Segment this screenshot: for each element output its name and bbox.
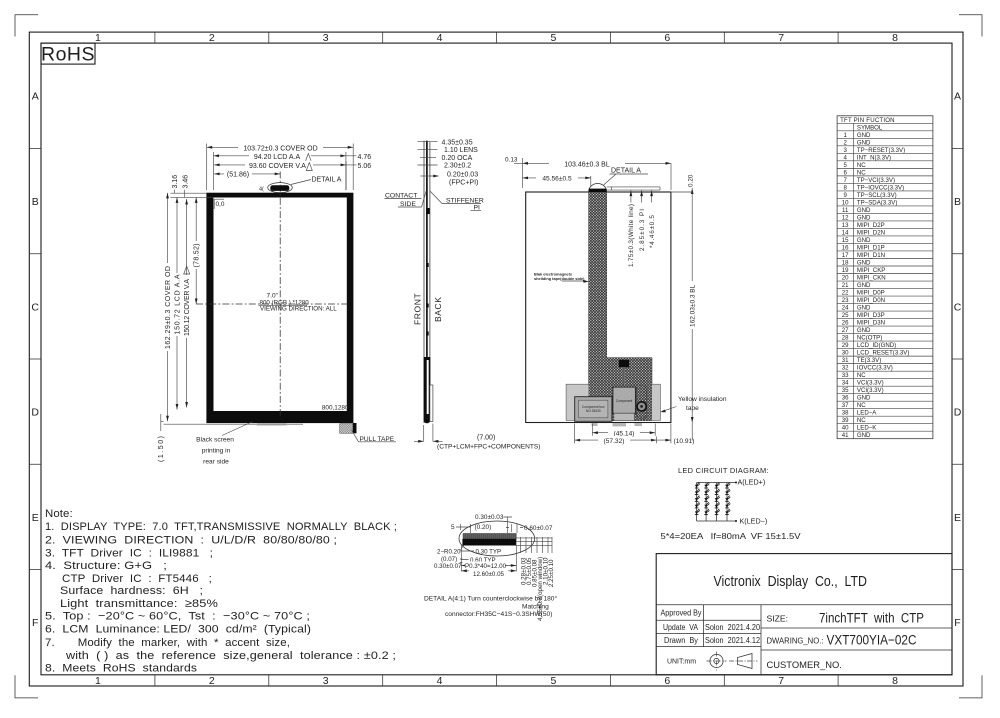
svg-text:Solon 2021.4.12: Solon 2021.4.12 xyxy=(705,636,760,645)
svg-text:B: B xyxy=(954,196,961,208)
svg-text:3: 3 xyxy=(323,32,329,44)
svg-text:6: 6 xyxy=(844,169,848,176)
svg-text:TP−SDA(3.3V): TP−SDA(3.3V) xyxy=(857,199,897,206)
svg-text:MIPI_D0P: MIPI_D0P xyxy=(857,290,885,297)
svg-text:Component: Component xyxy=(616,399,633,403)
svg-text:23: 23 xyxy=(842,297,849,304)
svg-text:3.46: 3.46 xyxy=(182,175,189,189)
svg-text:0,0: 0,0 xyxy=(216,201,225,208)
svg-text:NC(OTP): NC(OTP) xyxy=(857,335,882,342)
svg-text:13: 13 xyxy=(842,222,849,229)
svg-text:5: 5 xyxy=(550,675,556,687)
svg-text:P0.3*40=12.00: P0.3*40=12.00 xyxy=(465,563,507,570)
svg-text:D: D xyxy=(31,407,39,419)
svg-text:TP−IOVCC(3.3V): TP−IOVCC(3.3V) xyxy=(857,184,904,191)
svg-text:17: 17 xyxy=(842,252,849,259)
svg-text:DETAIL A(4:1) Turn countercloc: DETAIL A(4:1) Turn counterclockwise by 1… xyxy=(424,595,557,603)
svg-text:35: 35 xyxy=(842,387,849,394)
svg-text:5. Top : −20°C ~ 60°C, Tst: 5. Top : −20°C ~ 60°C, Tst : −30°C ~ 70°… xyxy=(45,611,310,623)
svg-text:GND: GND xyxy=(857,214,871,221)
svg-text:9: 9 xyxy=(844,192,848,199)
svg-text:K(LED−): K(LED−) xyxy=(740,517,768,526)
svg-text:E: E xyxy=(32,512,39,524)
svg-text:STIFFENER: STIFFENER xyxy=(446,197,484,204)
svg-text:16: 16 xyxy=(842,244,849,251)
svg-text:MIPI_D3P: MIPI_D3P xyxy=(857,312,885,319)
svg-text:32: 32 xyxy=(842,365,849,372)
svg-text:7. Modify the marker,: 7. Modify the marker, with * accent size… xyxy=(45,637,290,649)
svg-text:2. VIEWING DIRECTION : U/L: 2. VIEWING DIRECTION : U/L/D/R 80/80/80/… xyxy=(45,534,337,546)
svg-text:1.10 LENS: 1.10 LENS xyxy=(444,147,478,154)
svg-text:150.12 COVER V.A: 150.12 COVER V.A xyxy=(184,279,191,336)
svg-text:TP−RESET(3.3V): TP−RESET(3.3V) xyxy=(857,147,905,154)
svg-text:with ( ) as the reference: with ( ) as the reference size,general t… xyxy=(65,650,396,662)
svg-text:4: 4 xyxy=(844,154,848,161)
svg-text:10: 10 xyxy=(842,199,849,206)
svg-text:A: A xyxy=(954,91,961,103)
svg-text:0.20±0.03: 0.20±0.03 xyxy=(447,172,478,179)
svg-text:NO.25433: NO.25433 xyxy=(586,409,601,413)
svg-text:7: 7 xyxy=(778,675,784,687)
svg-text:0.13: 0.13 xyxy=(505,157,518,164)
svg-text:A(LED+): A(LED+) xyxy=(738,478,766,487)
svg-text:2.85±0.3 PI: 2.85±0.3 PI xyxy=(639,209,646,251)
svg-text:8: 8 xyxy=(844,184,848,191)
svg-text:NC: NC xyxy=(857,169,866,176)
svg-text:SIZE:: SIZE: xyxy=(767,614,789,624)
svg-text:1: 1 xyxy=(95,32,101,44)
svg-text:Note:: Note: xyxy=(45,508,73,520)
svg-text:GND: GND xyxy=(857,132,871,139)
svg-text:PULL TAPE: PULL TAPE xyxy=(360,436,395,443)
svg-text:VXT700YIA−02C: VXT700YIA−02C xyxy=(827,632,917,647)
svg-text:5.06: 5.06 xyxy=(358,163,372,170)
svg-text:40: 40 xyxy=(842,425,849,432)
svg-text:41: 41 xyxy=(842,432,849,439)
svg-text:TP−SCL(3.3V): TP−SCL(3.3V) xyxy=(857,192,897,199)
svg-text:1: 1 xyxy=(844,132,848,139)
svg-text:FRONT: FRONT xyxy=(413,293,423,325)
svg-text:Approved By: Approved By xyxy=(661,609,702,618)
svg-text:(CTP+LCM+FPC+COMPONENTS): (CTP+LCM+FPC+COMPONENTS) xyxy=(437,444,541,451)
svg-text:MIPI_CKN: MIPI_CKN xyxy=(857,275,886,282)
svg-text:103.46±0.3 BL: 103.46±0.3 BL xyxy=(564,161,610,168)
svg-text:Update VA: Update VA xyxy=(663,623,699,632)
svg-text:4: 4 xyxy=(437,675,443,687)
svg-text:5: 5 xyxy=(451,524,455,531)
svg-text:7: 7 xyxy=(844,177,848,184)
svg-text:22: 22 xyxy=(842,290,849,297)
svg-text:NC: NC xyxy=(857,402,866,409)
svg-text:NC: NC xyxy=(857,372,866,379)
svg-text:2: 2 xyxy=(209,32,215,44)
svg-text:*4.46±0.5: *4.46±0.5 xyxy=(649,215,656,248)
svg-text:21: 21 xyxy=(842,282,849,289)
svg-text:29: 29 xyxy=(842,342,849,349)
svg-text:39: 39 xyxy=(842,417,849,424)
svg-text:0.60±0.07: 0.60±0.07 xyxy=(524,525,553,532)
svg-text:F: F xyxy=(32,617,38,629)
svg-text:GND: GND xyxy=(857,305,871,312)
svg-text:38: 38 xyxy=(842,410,849,417)
svg-text:GND: GND xyxy=(857,207,871,214)
svg-text:tape: tape xyxy=(686,405,699,412)
svg-text:rear side: rear side xyxy=(203,459,229,466)
svg-text:GND: GND xyxy=(857,139,871,146)
svg-text:Yellow insulation: Yellow insulation xyxy=(678,396,727,403)
svg-text:20: 20 xyxy=(842,275,849,282)
svg-text:93.60 COVER V.A: 93.60 COVER V.A xyxy=(249,163,306,170)
svg-text:GND: GND xyxy=(857,432,871,439)
svg-text:printing in: printing in xyxy=(202,448,231,455)
svg-text:4. Structure: G+G ;: 4. Structure: G+G ; xyxy=(45,560,167,572)
svg-text:LED−A: LED−A xyxy=(857,410,877,417)
svg-text:6. LCM Luminance: LED/ 300: 6. LCM Luminance: LED/ 300 cd/m² (Typica… xyxy=(45,624,311,636)
svg-text:LCD_ID(GND): LCD_ID(GND) xyxy=(857,342,896,349)
svg-text:INT_N(3.3V): INT_N(3.3V) xyxy=(857,154,891,161)
svg-text:VIEWING DIRECTION: ALL: VIEWING DIRECTION: ALL xyxy=(260,306,337,313)
svg-text:36: 36 xyxy=(842,395,849,402)
svg-text:(FPC+PI): (FPC+PI) xyxy=(449,179,478,186)
svg-text:A: A xyxy=(32,91,39,103)
svg-text:7inchTFT with CTP: 7inchTFT with CTP xyxy=(819,610,924,625)
svg-text:Drawn By: Drawn By xyxy=(664,636,698,645)
svg-text:26: 26 xyxy=(842,320,849,327)
svg-text:11: 11 xyxy=(842,207,849,214)
svg-text:MIPI_D1N: MIPI_D1N xyxy=(857,252,885,259)
svg-text:RoHS: RoHS xyxy=(41,44,95,66)
svg-text:4.35±0.35: 4.35±0.35 xyxy=(442,139,473,146)
svg-text:800,1280: 800,1280 xyxy=(322,404,349,411)
svg-text:Light transmittance: ≥85%: Light transmittance: ≥85% xyxy=(60,598,218,610)
svg-text:NC: NC xyxy=(857,162,866,169)
svg-text:(0.07): (0.07) xyxy=(441,556,457,563)
svg-text:28: 28 xyxy=(842,335,849,342)
svg-text:(78.52): (78.52) xyxy=(194,244,201,268)
svg-text:4.76: 4.76 xyxy=(358,154,372,161)
svg-text:GND: GND xyxy=(857,237,871,244)
svg-text:(1.50): (1.50) xyxy=(158,436,165,462)
svg-text:0.20: 0.20 xyxy=(688,174,695,187)
svg-text:1.75±0.3(White line): 1.75±0.3(White line) xyxy=(628,204,635,267)
svg-text:MIPI_D0N: MIPI_D0N xyxy=(857,297,885,304)
svg-text:0.20 OCA: 0.20 OCA xyxy=(442,155,473,162)
svg-text:103.72±0.3 COVER OD: 103.72±0.3 COVER OD xyxy=(243,145,317,152)
svg-text:15: 15 xyxy=(842,237,849,244)
svg-text:30: 30 xyxy=(842,350,849,357)
svg-text:B: B xyxy=(32,196,39,208)
svg-text:C: C xyxy=(31,301,39,313)
svg-text:C: C xyxy=(954,301,962,313)
svg-text:(10.91): (10.91) xyxy=(674,438,695,445)
svg-text:94.20 LCD A.A: 94.20 LCD A.A xyxy=(254,154,301,161)
svg-text:MIPI_CKP: MIPI_CKP xyxy=(857,267,885,274)
svg-text:27: 27 xyxy=(842,327,849,334)
svg-text:7: 7 xyxy=(778,32,784,44)
svg-text:150.72 LCD A.A: 150.72 LCD A.A xyxy=(175,274,182,334)
svg-text:6: 6 xyxy=(664,32,670,44)
svg-text:45.56±0.5: 45.56±0.5 xyxy=(542,176,572,183)
svg-text:LED−K: LED−K xyxy=(857,425,876,432)
svg-text:2−R0.20: 2−R0.20 xyxy=(437,549,461,556)
svg-text:D: D xyxy=(954,407,962,419)
svg-text:2: 2 xyxy=(209,675,215,687)
svg-text:1: 1 xyxy=(95,675,101,687)
svg-text:Solon 2021.4.20: Solon 2021.4.20 xyxy=(705,623,760,632)
svg-text:DETAIL A: DETAIL A xyxy=(312,177,342,184)
svg-text:(7.00): (7.00) xyxy=(477,435,495,442)
svg-text:6: 6 xyxy=(664,675,670,687)
svg-text:MIPI_D2P: MIPI_D2P xyxy=(857,222,885,229)
svg-text:162.03±0.3 BL: 162.03±0.3 BL xyxy=(690,284,697,327)
svg-text:Black screen: Black screen xyxy=(196,437,234,444)
svg-text:Victronix Display Co., LTD: Victronix Display Co., LTD xyxy=(714,574,868,590)
svg-text:34: 34 xyxy=(842,380,849,387)
svg-text:8: 8 xyxy=(892,32,898,44)
svg-text:E: E xyxy=(954,512,961,524)
svg-text:NC: NC xyxy=(857,417,866,424)
svg-text:DETAIL A: DETAIL A xyxy=(611,168,641,175)
svg-text:MIPI_D3N: MIPI_D3N xyxy=(857,320,885,327)
svg-text:TP−VCI(3.3V): TP−VCI(3.3V) xyxy=(857,177,895,184)
svg-text:GND: GND xyxy=(857,282,871,289)
svg-text:2.30±0.2: 2.30±0.2 xyxy=(444,163,471,170)
svg-text:8: 8 xyxy=(892,675,898,687)
svg-text:Surface hardness: 6H ;: Surface hardness: 6H ; xyxy=(60,585,203,597)
svg-text:5: 5 xyxy=(844,162,848,169)
svg-text:TE(3.3V): TE(3.3V) xyxy=(857,357,881,364)
svg-text:SYMBOL: SYMBOL xyxy=(857,124,883,131)
svg-text:0.30±0.03: 0.30±0.03 xyxy=(475,514,504,521)
svg-text:sheilding tape(double side): sheilding tape(double side) xyxy=(534,276,585,281)
svg-text:(51.86): (51.86) xyxy=(227,172,249,179)
svg-text:VCI(3.3V): VCI(3.3V) xyxy=(857,380,884,387)
svg-text:18: 18 xyxy=(842,259,849,266)
svg-text:GND: GND xyxy=(857,259,871,266)
svg-text:162.29±0.3 COVER OD: 162.29±0.3 COVER OD xyxy=(165,266,172,349)
svg-text:GND: GND xyxy=(857,395,871,402)
svg-text:connector:FH35C−41S−0.3SHW(50): connector:FH35C−41S−0.3SHW(50) xyxy=(445,611,552,618)
svg-text:3: 3 xyxy=(844,147,848,154)
svg-text:GND: GND xyxy=(857,327,871,334)
svg-text:VCI(3.3V): VCI(3.3V) xyxy=(857,387,884,394)
svg-text:(57.32): (57.32) xyxy=(604,438,625,445)
svg-text:37: 37 xyxy=(842,402,849,409)
svg-text:IOVCC(3.3V): IOVCC(3.3V) xyxy=(857,365,893,372)
svg-text:1. DISPLAY TYPE: 7.0 TFT,T: 1. DISPLAY TYPE: 7.0 TFT,TRANSMISSIVE NO… xyxy=(45,521,397,533)
svg-text:UNIT:mm: UNIT:mm xyxy=(667,657,696,666)
svg-text:12: 12 xyxy=(842,214,849,221)
svg-text:CUSTOMER_NO.: CUSTOMER_NO. xyxy=(767,659,842,670)
svg-text:MIPI_D1P: MIPI_D1P xyxy=(857,244,885,251)
svg-text:33: 33 xyxy=(842,372,849,379)
svg-text:14: 14 xyxy=(842,229,849,236)
svg-text:12.60±0.05: 12.60±0.05 xyxy=(473,571,504,578)
svg-text:LCD_RESET(3.3V): LCD_RESET(3.3V) xyxy=(857,350,910,357)
svg-text:0.30 TYP: 0.30 TYP xyxy=(476,548,502,555)
svg-text:4(: 4( xyxy=(259,187,264,193)
svg-text:0.30±0.07: 0.30±0.07 xyxy=(434,563,462,570)
svg-text:CTP Driver IC : FT5446 ;: CTP Driver IC : FT5446 ; xyxy=(62,573,212,585)
svg-text:2: 2 xyxy=(844,139,848,146)
svg-text:MIPI_D2N: MIPI_D2N xyxy=(857,229,885,236)
svg-text:3. TFT Driver IC : ILI988: 3. TFT Driver IC : ILI9881 ; xyxy=(45,548,213,560)
svg-text:24: 24 xyxy=(842,305,849,312)
svg-text:Matching: Matching xyxy=(522,603,549,610)
svg-text:2.25±0.10: 2.25±0.10 xyxy=(548,559,555,587)
svg-text:3: 3 xyxy=(323,675,329,687)
svg-text:5*4=20EA If=80mA VF 15±1.5V: 5*4=20EA If=80mA VF 15±1.5V xyxy=(661,532,802,541)
svg-text:3.16: 3.16 xyxy=(172,175,179,189)
svg-text:TFT PIN FUCTION: TFT PIN FUCTION xyxy=(840,117,895,124)
svg-text:LED CIRCUIT DIAGRAM:: LED CIRCUIT DIAGRAM: xyxy=(678,466,769,475)
svg-text:7.0": 7.0" xyxy=(267,293,279,300)
svg-text:F: F xyxy=(954,617,960,629)
svg-text:DWARING_NO.:: DWARING_NO.: xyxy=(767,636,824,646)
svg-text:4: 4 xyxy=(437,32,443,44)
svg-text:25: 25 xyxy=(842,312,849,319)
svg-text:31: 31 xyxy=(842,357,849,364)
svg-text:8. Meets RoHS standards: 8. Meets RoHS standards xyxy=(45,663,197,675)
svg-text:5: 5 xyxy=(550,32,556,44)
svg-text:(0.20): (0.20) xyxy=(475,524,492,531)
svg-text:19: 19 xyxy=(842,267,849,274)
svg-text:BACK: BACK xyxy=(433,296,443,322)
